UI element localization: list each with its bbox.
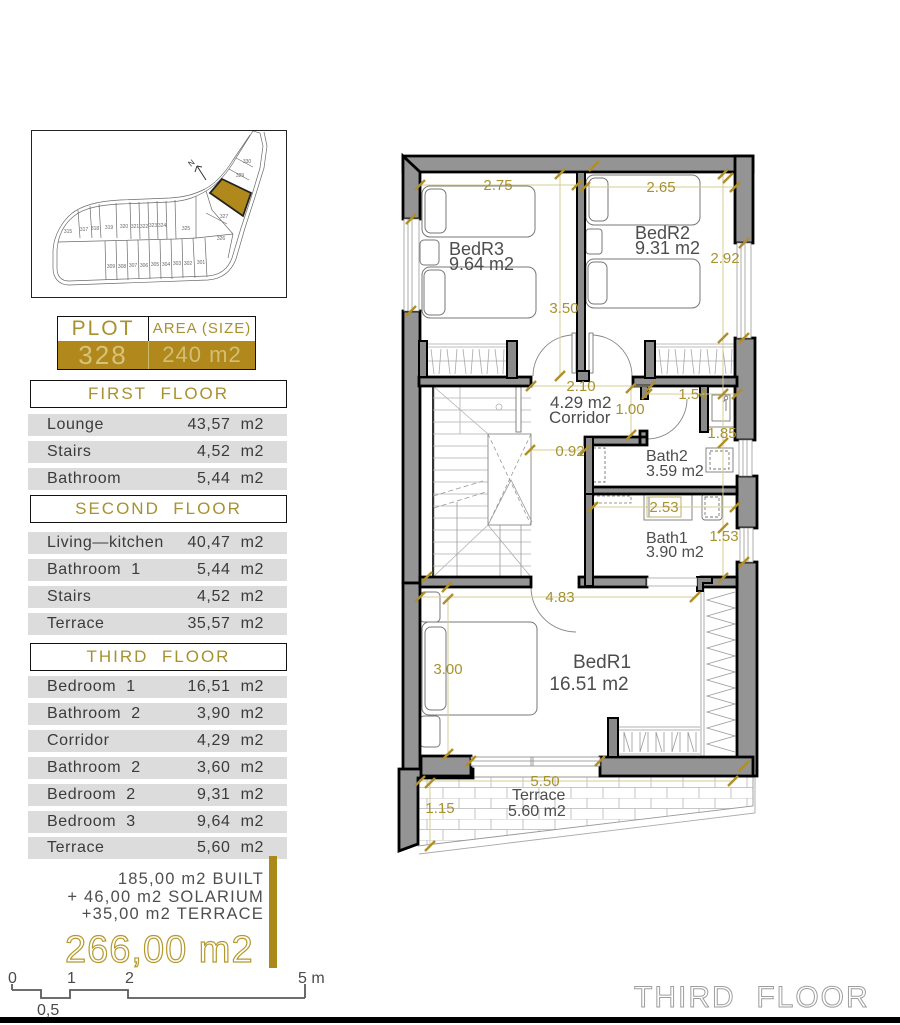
svg-text:9.31 m2: 9.31 m2 xyxy=(635,238,700,258)
svg-text:1: 1 xyxy=(67,970,76,987)
svg-text:3.59 m2: 3.59 m2 xyxy=(646,463,704,480)
svg-text:1.53: 1.53 xyxy=(709,528,738,545)
svg-text:326: 326 xyxy=(217,236,226,242)
svg-text:318: 318 xyxy=(91,226,100,232)
svg-text:5.60 m2: 5.60 m2 xyxy=(508,803,566,820)
svg-text:323: 323 xyxy=(149,223,158,229)
svg-text:303: 303 xyxy=(173,261,182,267)
svg-text:2.92: 2.92 xyxy=(710,250,739,267)
svg-text:3.50: 3.50 xyxy=(549,300,578,317)
svg-text:319: 319 xyxy=(105,225,114,231)
svg-text:3.00: 3.00 xyxy=(433,661,462,678)
svg-text:Terrace: Terrace xyxy=(512,787,565,804)
svg-text:320: 320 xyxy=(120,224,129,230)
svg-text:Corridor: Corridor xyxy=(549,408,611,427)
svg-text:304: 304 xyxy=(162,262,171,268)
svg-text:325: 325 xyxy=(182,226,191,232)
svg-text:317: 317 xyxy=(80,227,89,233)
svg-text:324: 324 xyxy=(158,223,167,229)
svg-text:330: 330 xyxy=(243,159,252,165)
svg-text:2: 2 xyxy=(125,970,134,987)
svg-text:1.54: 1.54 xyxy=(678,386,707,403)
svg-text:BedR1: BedR1 xyxy=(573,652,631,673)
svg-text:3.90 m2: 3.90 m2 xyxy=(646,544,704,561)
svg-text:308: 308 xyxy=(118,264,127,270)
svg-text:4.83: 4.83 xyxy=(545,589,574,606)
svg-text:301: 301 xyxy=(197,260,206,266)
svg-text:315: 315 xyxy=(64,229,73,235)
svg-text:307: 307 xyxy=(129,263,138,269)
svg-text:5 m: 5 m xyxy=(298,970,325,987)
svg-text:2.65: 2.65 xyxy=(646,179,675,196)
svg-text:305: 305 xyxy=(151,262,160,268)
svg-text:302: 302 xyxy=(184,261,193,267)
svg-text:2.53: 2.53 xyxy=(649,499,678,516)
svg-text:1.00: 1.00 xyxy=(615,401,644,418)
svg-text:9.64 m2: 9.64 m2 xyxy=(449,254,514,274)
svg-text:321: 321 xyxy=(131,224,140,230)
svg-text:2.75: 2.75 xyxy=(483,177,512,194)
svg-text:16.51 m2: 16.51 m2 xyxy=(549,674,628,695)
svg-text:1.15: 1.15 xyxy=(425,800,454,817)
svg-text:322: 322 xyxy=(140,224,149,230)
svg-text:306: 306 xyxy=(140,263,149,269)
svg-text:327: 327 xyxy=(220,214,229,220)
svg-text:N: N xyxy=(186,158,196,169)
svg-text:1.85: 1.85 xyxy=(707,425,736,442)
svg-text:329: 329 xyxy=(236,173,245,179)
svg-text:309: 309 xyxy=(107,264,116,270)
svg-text:0.92: 0.92 xyxy=(555,443,584,460)
